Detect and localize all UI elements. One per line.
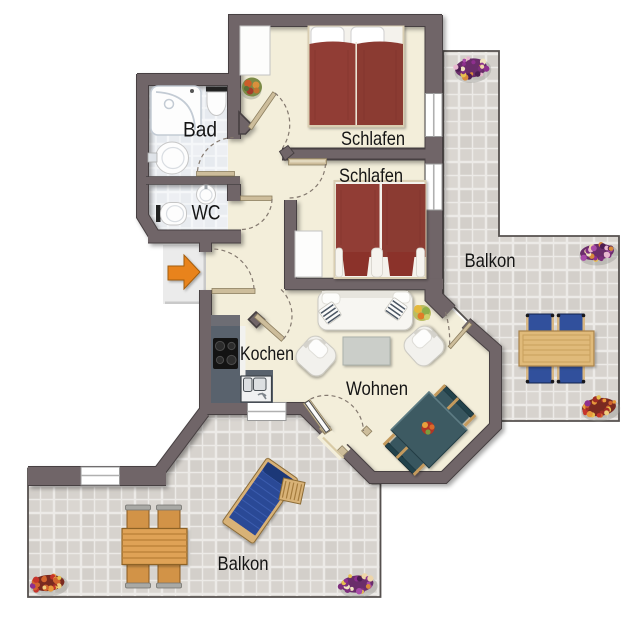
svg-text:Schlafen: Schlafen [339,165,403,187]
svg-text:Kochen: Kochen [240,343,294,365]
svg-text:Balkon: Balkon [218,553,269,575]
svg-text:WC: WC [192,202,221,225]
svg-text:Bad: Bad [183,119,217,142]
svg-text:Wohnen: Wohnen [346,378,408,400]
svg-text:Schlafen: Schlafen [341,128,405,150]
svg-text:Balkon: Balkon [465,250,516,272]
